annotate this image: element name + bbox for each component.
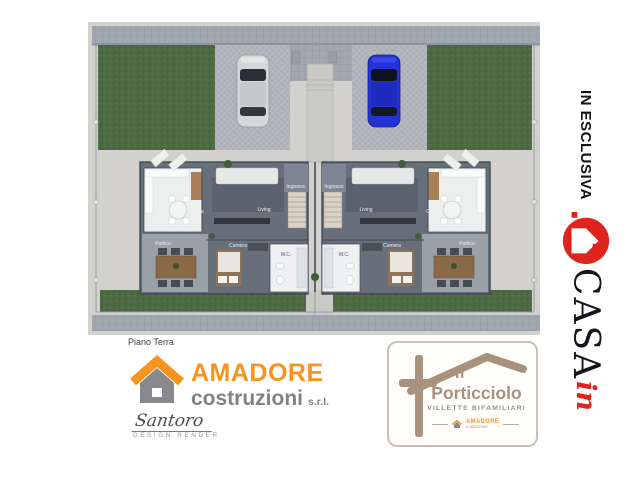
room-label-camera-right: Camera bbox=[383, 243, 401, 249]
project-builder-lockup: AMADORE costruzioni bbox=[417, 419, 534, 430]
blue-car-icon bbox=[368, 55, 400, 127]
silver-car-icon bbox=[237, 55, 269, 127]
room-label-cucina-left: Cucina bbox=[188, 209, 204, 215]
room-label-cucina-right: Cucina bbox=[426, 209, 442, 215]
designer-credit: Santoro DESIGN RENDER bbox=[133, 413, 220, 440]
builder-suffix: s.r.l. bbox=[308, 397, 329, 408]
mini-house-icon bbox=[452, 420, 462, 429]
designer-signature: Santoro bbox=[132, 413, 215, 432]
divider-line bbox=[503, 424, 519, 425]
builder-line2: costruzioni bbox=[191, 388, 303, 409]
builder-name: AMADORE bbox=[191, 361, 329, 386]
right-lawn bbox=[418, 45, 532, 150]
project-subtitle: VILLETTE BIFAMILIARI bbox=[419, 405, 534, 412]
divider-line bbox=[432, 424, 448, 425]
room-label-living-right: Living bbox=[359, 207, 372, 213]
left-lawn bbox=[98, 45, 216, 150]
room-label-portico-left: Portico bbox=[155, 241, 171, 247]
entry-walkway bbox=[307, 64, 333, 162]
gate-pillar-right bbox=[329, 52, 337, 63]
gate-pillar-left bbox=[292, 52, 300, 63]
room-label-wc-right: W.C. bbox=[339, 252, 350, 258]
exclusive-text: IN ESCLUSIVA bbox=[578, 90, 595, 200]
project-name: Porticciolo bbox=[419, 383, 534, 404]
room-label-living-left: Living bbox=[257, 207, 270, 213]
floor-label: Piano Terra bbox=[128, 337, 174, 347]
builder-logo: AMADORE costruzioni s.r.l. bbox=[130, 355, 329, 413]
amadore-house-icon bbox=[130, 355, 184, 413]
room-label-camera-left: Camera bbox=[229, 243, 247, 249]
exclusive-ribbon: IN ESCLUSIVA CASA in bbox=[557, 90, 615, 376]
staircase bbox=[288, 192, 306, 228]
casa-brand-script: in bbox=[571, 381, 602, 411]
top-sidewalk bbox=[92, 26, 540, 45]
room-label-portico-right: Portico bbox=[459, 241, 475, 247]
flyer-canvas: Cucina Living Camera W.C. Portico Ingres… bbox=[0, 0, 640, 480]
designer-label: DESIGN RENDER bbox=[133, 433, 220, 440]
lockup-builder-line2: costruzioni bbox=[466, 425, 499, 430]
bottom-sidewalk bbox=[92, 315, 540, 331]
floor-plan-render: Cucina Living Camera W.C. Portico Ingres… bbox=[88, 22, 540, 335]
room-label-ingresso-right: Ingresso bbox=[324, 184, 343, 190]
shrub bbox=[311, 273, 319, 281]
casa-brand: CASA bbox=[566, 268, 607, 380]
project-badge: Il Porticciolo VILLETTE BIFAMILIARI AMAD… bbox=[387, 341, 538, 447]
room-label-ingresso-left: Ingresso bbox=[286, 184, 305, 190]
floor-plan: Cucina Living Camera W.C. Portico Ingres… bbox=[88, 22, 540, 335]
casa-in-house-icon bbox=[560, 212, 612, 264]
room-label-wc-left: W.C. bbox=[281, 252, 292, 258]
project-prefix: Il bbox=[455, 365, 465, 382]
housing-unit bbox=[140, 149, 308, 294]
